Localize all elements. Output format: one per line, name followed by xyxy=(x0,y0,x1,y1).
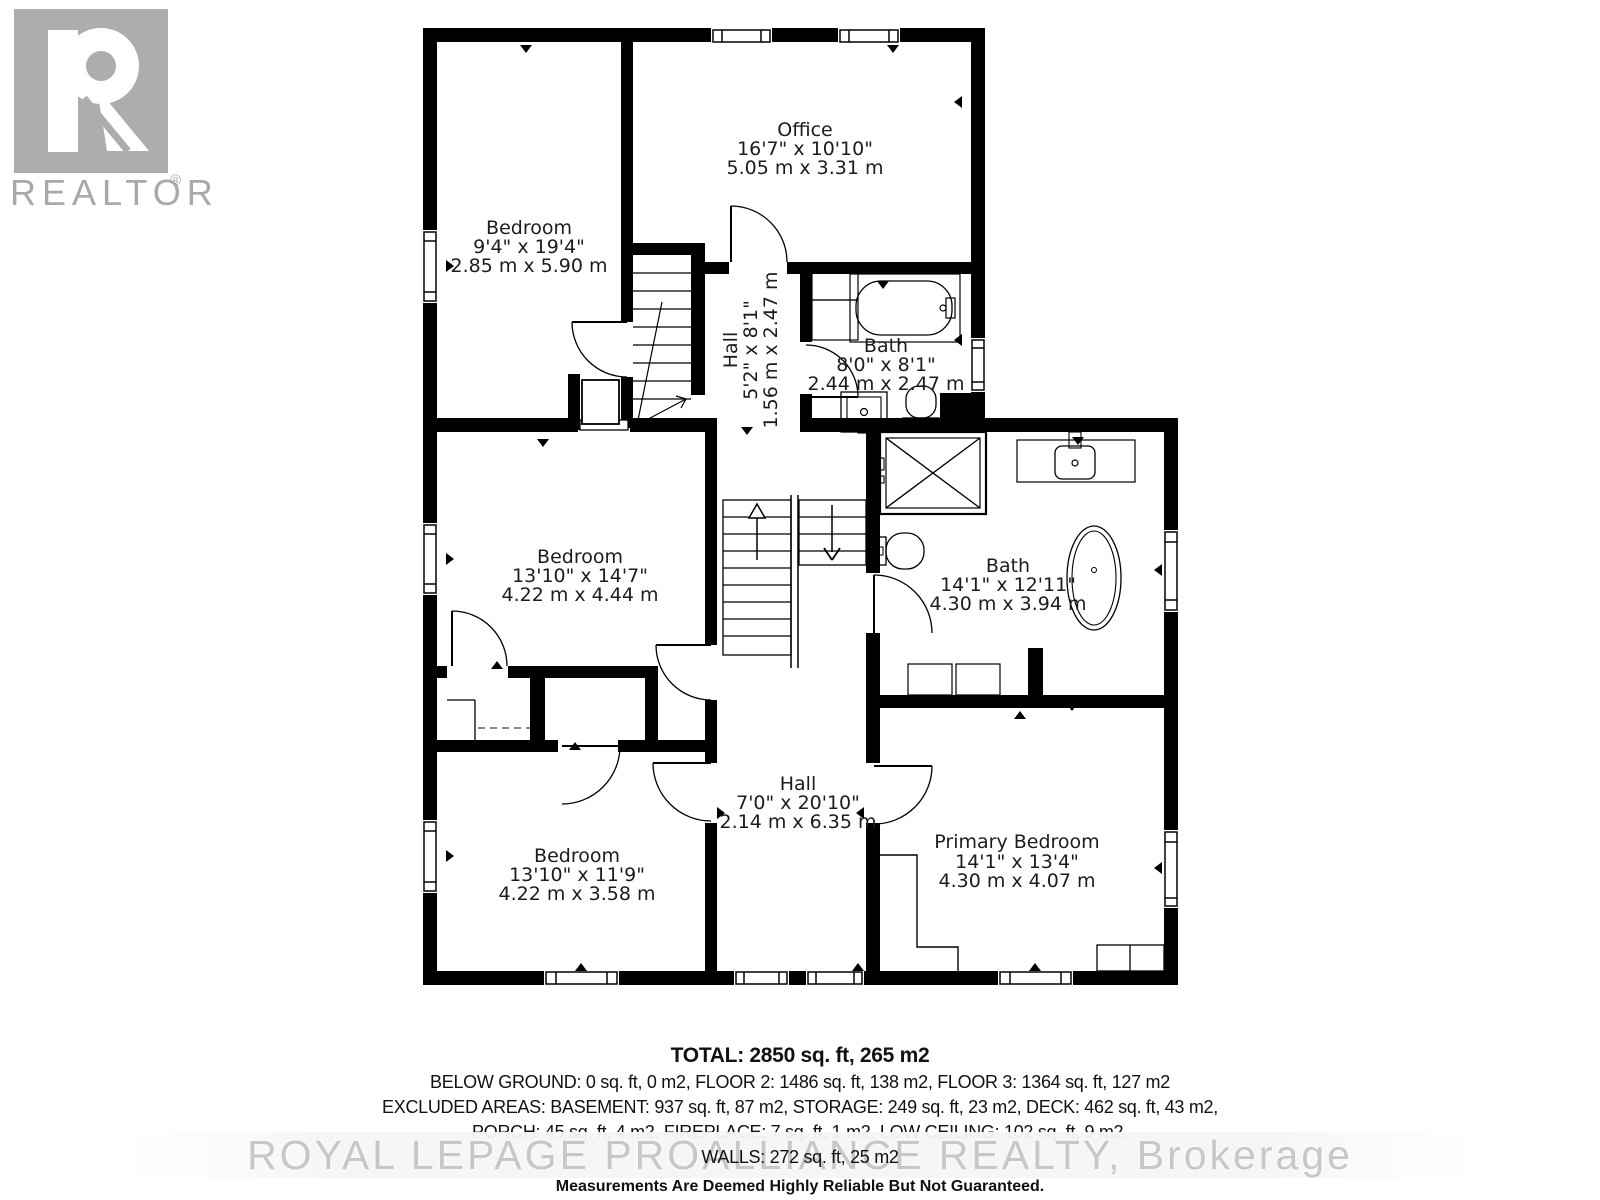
window-icon xyxy=(1161,530,1181,612)
landing-closet xyxy=(582,380,619,424)
svg-text:2.14 m x 6.35 m: 2.14 m x 6.35 m xyxy=(719,811,876,833)
floor-plan-page: REALTOR ® xyxy=(0,0,1600,1200)
window-icon xyxy=(734,968,789,988)
svg-text:4.30 m x 3.94 m: 4.30 m x 3.94 m xyxy=(929,593,1086,615)
total-area: TOTAL: 2850 sq. ft, 265 m2 xyxy=(0,1044,1600,1068)
svg-text:5.05 m x 3.31 m: 5.05 m x 3.31 m xyxy=(726,157,883,179)
excluded-areas-summary: EXCLUDED AREAS: BASEMENT: 937 sq. ft, 87… xyxy=(0,1097,1600,1118)
svg-text:Hall: Hall xyxy=(720,332,742,369)
window-icon xyxy=(968,338,988,392)
window-icon xyxy=(420,820,440,893)
window-icon xyxy=(420,523,440,595)
disclaimer: Measurements Are Deemed Highly Reliable … xyxy=(0,1178,1600,1196)
svg-text:5'2" x 8'1": 5'2" x 8'1" xyxy=(740,300,762,400)
window-icon xyxy=(420,230,440,303)
svg-text:4.22 m x 3.58 m: 4.22 m x 3.58 m xyxy=(498,883,655,905)
walls-summary: WALLS: 272 sq. ft, 25 m2 xyxy=(0,1147,1600,1168)
registered-mark: ® xyxy=(170,172,181,189)
realtor-logo-text: REALTOR xyxy=(10,172,219,213)
svg-text:2.85 m x 5.90 m: 2.85 m x 5.90 m xyxy=(450,255,607,277)
svg-text:4.30 m x 4.07 m: 4.30 m x 4.07 m xyxy=(938,870,1095,892)
window-icon xyxy=(1161,830,1181,908)
window-icon xyxy=(838,26,900,46)
window-icon xyxy=(711,26,772,46)
svg-text:1.56 m x 2.47 m: 1.56 m x 2.47 m xyxy=(760,271,782,428)
svg-text:Primary Bedroom: Primary Bedroom xyxy=(934,831,1099,853)
room-label-primary-bedroom: Primary Bedroom 14'1" x 13'4" 4.30 m x 4… xyxy=(934,831,1099,892)
svg-text:2.44 m x 2.47 m: 2.44 m x 2.47 m xyxy=(807,373,964,395)
svg-text:4.22 m x 4.44 m: 4.22 m x 4.44 m xyxy=(501,584,658,606)
floor-plan-drawing: REALTOR ® xyxy=(0,0,1600,1200)
floors-summary: BELOW GROUND: 0 sq. ft, 0 m2, FLOOR 2: 1… xyxy=(0,1072,1600,1093)
realtor-logo-icon: REALTOR ® xyxy=(10,9,219,213)
